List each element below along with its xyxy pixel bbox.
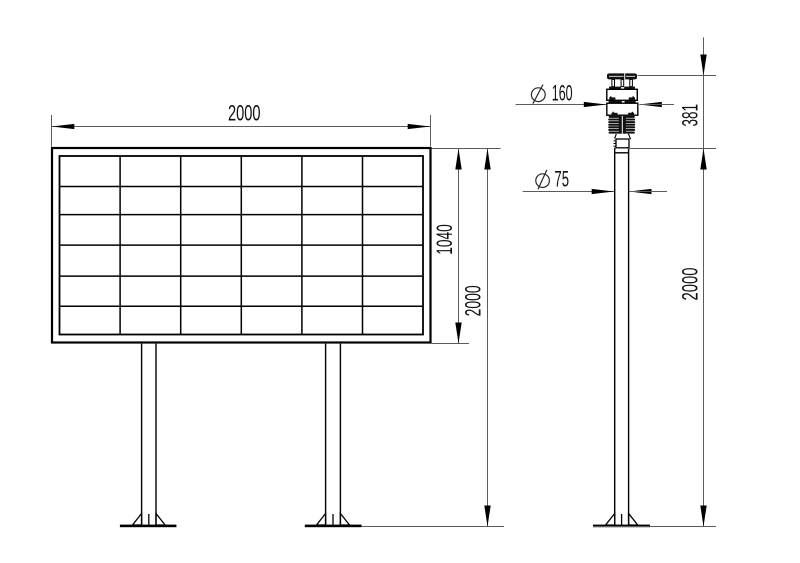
svg-text:1040: 1040: [432, 224, 457, 255]
svg-text:2000: 2000: [228, 100, 261, 125]
svg-text:2000: 2000: [678, 268, 703, 301]
svg-text:381: 381: [677, 104, 702, 127]
svg-text:2000: 2000: [461, 285, 486, 316]
svg-text:75: 75: [554, 167, 569, 192]
svg-text:160: 160: [552, 81, 573, 106]
